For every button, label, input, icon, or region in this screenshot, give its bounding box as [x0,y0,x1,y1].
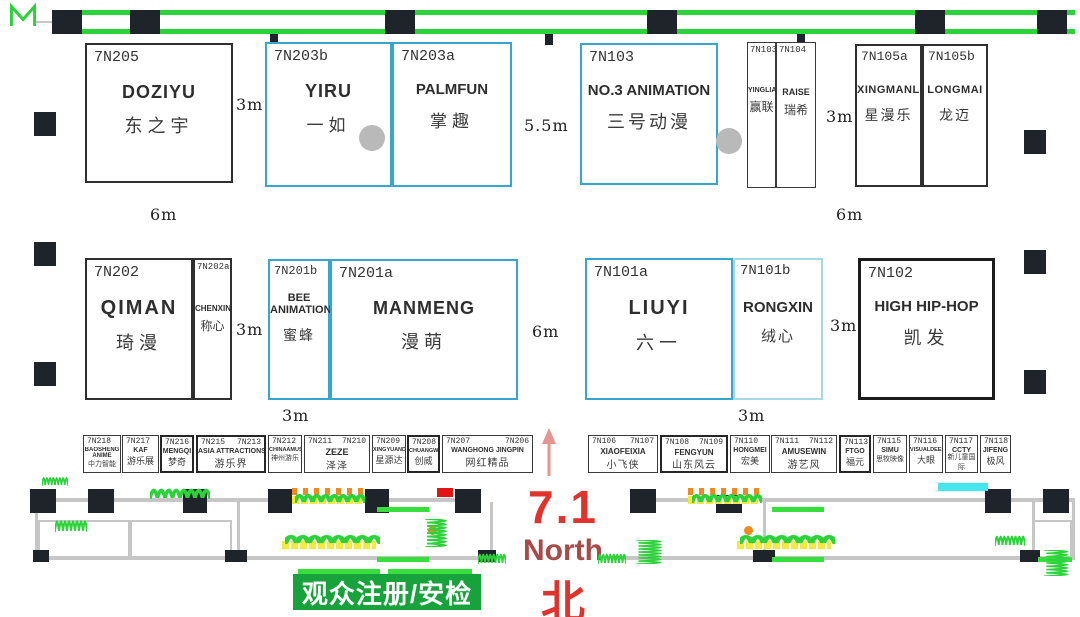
gate-bar [377,557,429,562]
booth-code: 7N203b [274,48,328,65]
booth-code: 7N202 [94,264,139,281]
booth-7N209: 7N209 XINGYUANDA 星源达 [372,435,406,473]
booth-name: MANMENG [332,298,516,319]
booth-code: 7N110 [734,437,758,446]
booth-name: SIMU [874,447,906,454]
gate-bar [772,557,824,562]
visitor-registration-security-badge: 观众注册/安检 [293,574,481,610]
booth-name-cn: 瑞希 [777,101,815,118]
booth-7N217: 7N217 KAF 游乐展 [122,435,159,473]
booth-name-cn: 宏美 [731,454,769,467]
booth-code: 7N105a [861,49,908,64]
booth-7N201a: 7N201a MANMENG 漫萌 [330,259,518,400]
booth-name: AMUSEWIN [772,447,836,456]
booth-name-cn: 泽泽 [305,457,369,472]
booth-7N111-7N112: 7N1117N112 AMUSEWIN 游艺风 [771,435,837,473]
entrance-pillar [30,489,56,513]
booth-7N101b: 7N101b RONGXIN 绒心 [733,258,823,400]
booth-name: NO.3 ANIMATION [582,82,716,99]
booth-7N216: 7N216 MENGQI 梦奇 [160,435,194,473]
booth-7N101a: 7N101a LIUYI 六一 [585,258,733,400]
plant-squiggle-icon [425,519,459,547]
booth-name: RONGXIN [735,299,821,316]
entrance-pillar-small [225,550,247,562]
plant-squiggle-icon [478,548,506,564]
booth-code: 7N201b [274,264,317,278]
booth-code: 7N109 [699,438,723,447]
wall-tick [545,34,553,45]
wall-pillar [1037,10,1067,34]
booth-name-cn: 思牧映像 [874,454,906,464]
dim-label: 3m [738,406,765,425]
booth-name: KAF [123,447,158,454]
booth-name-cn: 山东风云 [662,456,726,471]
booth-code: 7N218 [87,437,111,446]
booth-name-cn: 游乐展 [123,454,158,467]
booth-name-cn: 神州游乐 [269,453,301,463]
booth-name-cn: 六一 [587,329,731,355]
booth-code: 7N217 [126,437,150,446]
booth-7N203a: 7N203a PALMFUN 掌趣 [392,42,512,187]
dim-label: 3m [236,95,263,114]
wall-pillar [915,10,945,34]
booth-name: HIGH HIP-HOP [861,298,992,315]
booth-7N106-7N107: 7N1067N107 XIAOFEIXIA 小飞侠 [588,435,658,473]
booth-name: BEE ANIMATION [270,292,328,316]
dim-label: 5.5m [524,116,569,135]
column-circle [359,125,385,151]
booth-7N103a: 7N103a YINGLIAN 赢联 [747,42,776,188]
booth-code: 7N106 [592,437,616,446]
booth-code: 7N103 [589,49,634,66]
booth-name-cn: 蜜蜂 [270,325,328,345]
booth-code: 7N209 [376,437,400,446]
booth-name: LIUYI [587,297,731,320]
hall-pillar [34,362,56,386]
plant-squiggle-icon [995,530,1025,546]
hall-pillar [34,242,56,266]
booth-code: 7N211 [308,437,332,446]
booth-code: 7N201a [339,265,393,282]
booth-name-cn: 东之宇 [87,112,231,138]
dim-label: 6m [836,205,863,224]
booth-name-cn: 游乐界 [198,455,264,470]
plant-squiggle-icon [285,530,380,544]
booth-name: PALMFUN [394,81,510,98]
booth-name: JIFENG [981,447,1010,454]
booth-name: FTGO [841,448,869,455]
plant-squiggle-icon [55,514,87,532]
booth-7N118: 7N118 JIFENG 极风 [980,435,1011,473]
entrance-pillar [1043,489,1069,513]
booth-name: ZEZE [305,447,369,457]
booth-code: 7N207 [446,437,470,446]
booth-name: XINGMANLE [857,84,920,96]
dim-label: 3m [826,107,853,126]
booth-name: XIAOFEIXIA [589,447,657,456]
booth-code: 7N104 [779,45,806,55]
floor-plan: 7N205 DOZIYU 东之宇 7N203b YIRU 一如 7N203a P… [0,0,1080,617]
column-circle [716,128,742,154]
entrance-pillar [88,489,114,513]
plant-squiggle-icon [1044,550,1080,576]
booth-code: 7N210 [342,437,366,446]
booth-name-cn: 龙迈 [924,105,986,125]
booth-code: 7N205 [94,49,139,66]
booth-code: 7N105b [928,49,975,64]
booth-name: FENGYUN [662,448,726,456]
booth-7N115: 7N115 SIMU 思牧映像 [873,435,907,473]
booth-7N110: 7N110 HONGMEI 宏美 [730,435,770,473]
dim-label: 6m [150,205,177,224]
booth-name: RAISE [777,87,815,97]
booth-code: 7N101b [740,263,790,279]
top-wall [52,10,1075,34]
entrance-pillar-small [33,550,49,562]
north-label-cn: 北 [503,566,623,617]
booth-name-cn: 梦奇 [162,455,192,468]
booth-code: 7N202a [197,262,229,272]
gate-bar [772,507,824,512]
booth-code: 7N102 [868,265,913,282]
cyan-marker [938,483,988,491]
booth-7N202a: 7N202a CHENXIN 称心 [193,258,232,400]
booth-name-cn: 琦漫 [87,329,191,355]
entrance-pillar-small [1020,550,1040,562]
booth-name: BAOSHENG ANIME [84,447,120,459]
plant-squiggle-icon [150,483,210,499]
booth-name: YINGLIAN [748,87,775,94]
booth-code: 7N101a [594,264,648,281]
booth-name-cn: 掌趣 [394,107,510,132]
dim-label: 3m [830,316,857,335]
booth-7N212: 7N212 CHINAAMUSE 神州游乐 [268,435,302,473]
booth-name-cn: 三号动漫 [582,108,716,134]
booth-code: 7N112 [809,437,833,446]
booth-7N108-7N109: 7N1087N109 FENGYUN 山东风云 [660,435,728,473]
booth-code: 7N213 [237,438,261,447]
north-arrow-icon [540,428,558,478]
booth-name-cn: 大眼 [910,453,942,466]
booth-code: 7N108 [665,438,689,447]
booth-name-cn: 星源达 [373,453,405,466]
booth-7N105b: 7N105b LONGMAI 龙迈 [922,44,988,187]
booth-7N211-7N210: 7N2117N210 ZEZE 泽泽 [304,435,370,473]
booth-name-cn: 凯发 [861,324,992,350]
dim-label: 6m [532,322,559,341]
booth-name: HONGMEI [731,447,769,454]
booth-7N218: 7N218 BAOSHENG ANIME 中力智能 [83,435,121,473]
hall-pillar [34,112,56,136]
booth-7N201b: 7N201b BEE ANIMATION 蜜蜂 [268,259,330,400]
dim-label: 3m [282,406,309,425]
booth-name-cn: 新儿童国际 [946,452,977,472]
booth-code: 7N111 [775,437,799,446]
booth-7N104: 7N104 RAISE 瑞希 [776,42,816,188]
booth-name-cn: 绒心 [735,325,821,346]
red-marker [437,488,453,497]
booth-code: 7N215 [201,438,225,447]
booth-name-cn: 漫萌 [332,328,516,354]
booth-7N208: 7N208 CHUANGWEI 创威 [407,435,440,473]
booth-name-cn: 福元 [841,455,869,468]
booth-7N102: 7N102 HIGH HIP-HOP 凯发 [858,258,995,400]
booth-7N117: 7N117 CCTY 新儿童国际 [945,435,978,473]
booth-name-cn: 中力智能 [84,459,120,469]
booth-name: YIRU [267,81,390,102]
booth-7N116: 7N116 VISUALDEEP 大眼 [909,435,943,473]
booth-name: WANGHONG JINGPIN [443,447,532,454]
booth-name: CHENXIN [195,304,230,313]
booth-code: 7N212 [272,437,296,446]
plant-squiggle-icon [598,548,626,564]
plant-squiggle-icon [295,489,365,503]
booth-code: 7N216 [165,438,189,447]
booth-code: 7N118 [984,437,1008,446]
corridor-rail [612,556,1075,560]
hall-pillar [1024,370,1046,394]
dim-label: 3m [236,320,263,339]
booth-7N207-7N206: 7N2077N206 WANGHONG JINGPIN 网红精品 [442,435,533,473]
plant-squiggle-icon [42,472,68,486]
booth-name: DOZIYU [87,82,231,103]
booth-code: 7N116 [913,437,937,446]
booth-name-cn: 小飞侠 [589,456,657,471]
booth-name-cn: 星漫乐 [857,105,920,125]
booth-name-cn: 称心 [195,317,230,334]
booth-name-cn: 创威 [409,454,438,467]
entrance-pillar [985,489,1011,513]
entrance-pillar [630,489,656,513]
wall-pillar [52,10,82,34]
entrance-room [130,520,232,558]
booth-7N105a: 7N105a XINGMANLE 星漫乐 [855,44,922,187]
booth-7N202: 7N202 QIMAN 琦漫 [85,258,193,400]
hall-number: 7.1 [503,480,623,534]
wall-pillar [647,10,677,34]
booth-7N205: 7N205 DOZIYU 东之宇 [85,43,233,183]
gate-bar [377,507,429,512]
booth-name: LONGMAI [924,84,986,96]
booth-code: 7N117 [949,437,973,446]
booth-code: 7N107 [630,437,654,446]
plant-squiggle-icon [692,489,762,503]
booth-code: 7N113 [844,438,868,447]
booth-name: ASIA ATTRACTIONS [198,448,264,455]
plant-squiggle-icon [636,540,676,564]
booth-name: QIMAN [87,297,191,320]
booth-code: 7N115 [877,437,901,446]
booth-name-cn: 赢联 [748,98,775,115]
plant-squiggle-icon [740,530,835,544]
booth-7N203b: 7N203b YIRU 一如 [265,42,392,187]
booth-name: MENGQI [162,448,192,455]
booth-name-cn: 游艺风 [772,456,836,471]
booth-code: 7N206 [505,437,529,446]
wall-pillar [385,10,415,34]
booth-7N113: 7N113 FTGO 福元 [839,435,871,473]
entrance-pillar [455,489,481,513]
hall-pillar [1024,250,1046,274]
booth-7N103: 7N103 NO.3 ANIMATION 三号动漫 [580,43,718,185]
wall-pillar [130,10,160,34]
booth-7N215-7N213: 7N2157N213 ASIA ATTRACTIONS 游乐界 [196,435,266,473]
booth-name-cn: 网红精品 [443,454,532,469]
booth-code: 7N208 [412,438,436,447]
plant-squiggle-icon [10,2,36,26]
hall-pillar [1024,130,1046,154]
booth-name-cn: 极风 [981,454,1010,467]
entrance-pillar [268,489,292,513]
booth-code: 7N203a [401,48,455,65]
